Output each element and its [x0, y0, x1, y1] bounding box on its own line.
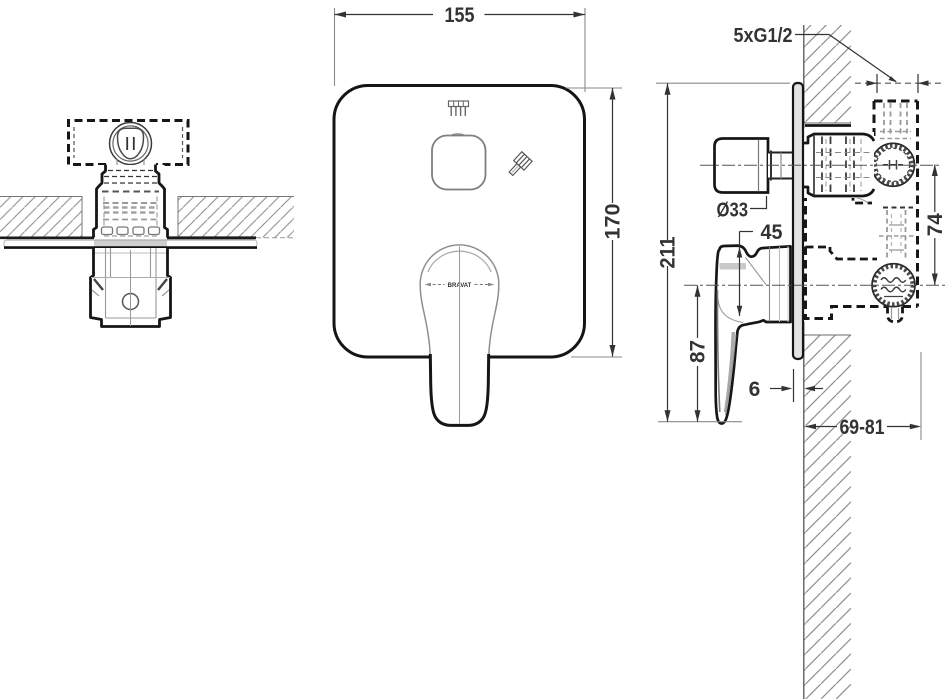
- svg-text:Ø33: Ø33: [717, 200, 749, 222]
- svg-text:170: 170: [602, 204, 625, 240]
- svg-text:155: 155: [445, 4, 475, 27]
- svg-text:87: 87: [687, 340, 710, 363]
- svg-text:69-81: 69-81: [840, 416, 885, 439]
- svg-text:6: 6: [749, 378, 761, 401]
- svg-text:74: 74: [924, 213, 947, 236]
- svg-text:45: 45: [761, 221, 783, 244]
- svg-text:5xG1/2: 5xG1/2: [734, 25, 793, 47]
- svg-text:211: 211: [657, 236, 680, 268]
